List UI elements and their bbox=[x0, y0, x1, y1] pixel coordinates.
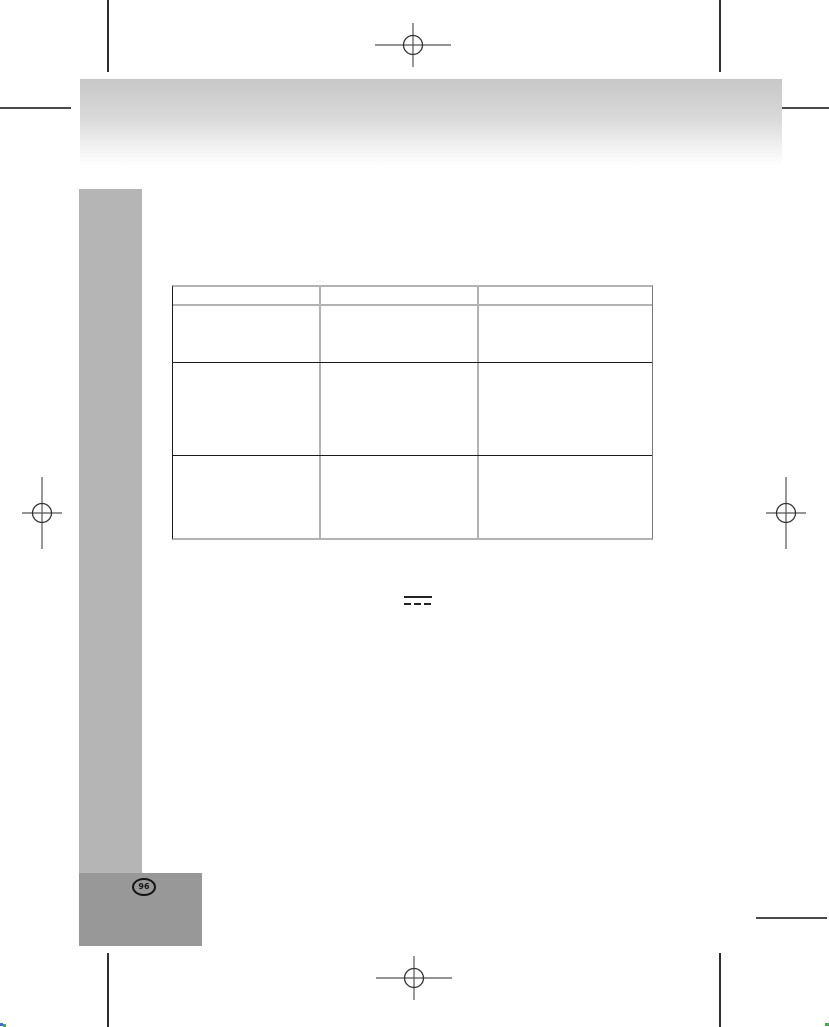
crop-mark-top-right-vertical bbox=[719, 0, 721, 72]
table-cell bbox=[173, 287, 321, 304]
crop-mark-right-bottom-horizontal bbox=[756, 917, 827, 919]
table-cell bbox=[173, 363, 321, 455]
table-row bbox=[173, 456, 652, 538]
crop-mark-bottom-left-vertical bbox=[107, 953, 109, 1027]
table-cell bbox=[479, 287, 652, 304]
footer-page-box: 96 bbox=[79, 873, 202, 946]
crop-mark-bottom-right-vertical bbox=[719, 953, 721, 1027]
table-header-row bbox=[173, 287, 652, 306]
registration-target-icon bbox=[373, 21, 453, 69]
table-cell bbox=[479, 306, 652, 362]
dc-dash bbox=[424, 603, 431, 605]
table-cell bbox=[173, 306, 321, 362]
table-cell bbox=[321, 306, 479, 362]
dc-power-icon bbox=[404, 596, 432, 608]
crop-mark-left-top-horizontal bbox=[0, 107, 71, 109]
spec-table bbox=[172, 285, 653, 540]
scanned-page: 96 bbox=[0, 0, 829, 1027]
dc-dash bbox=[404, 603, 411, 605]
registration-target-icon bbox=[764, 475, 808, 551]
table-row bbox=[173, 306, 652, 363]
registration-target-icon bbox=[374, 954, 454, 1002]
registration-target-icon bbox=[20, 475, 64, 551]
table-cell bbox=[321, 363, 479, 455]
table-cell bbox=[321, 456, 479, 538]
crop-mark-top-left-vertical bbox=[107, 0, 109, 72]
header-gradient-band bbox=[80, 79, 782, 166]
color-registration-dot-green bbox=[825, 1023, 829, 1026]
table-cell bbox=[479, 363, 652, 455]
table-cell bbox=[321, 287, 479, 304]
page-number-badge: 96 bbox=[132, 878, 156, 896]
dc-dash bbox=[414, 603, 421, 605]
table-cell bbox=[479, 456, 652, 538]
table-cell bbox=[173, 456, 321, 538]
dc-solid-bar bbox=[404, 596, 432, 598]
table-row bbox=[173, 363, 652, 456]
sidebar-band bbox=[79, 189, 142, 873]
